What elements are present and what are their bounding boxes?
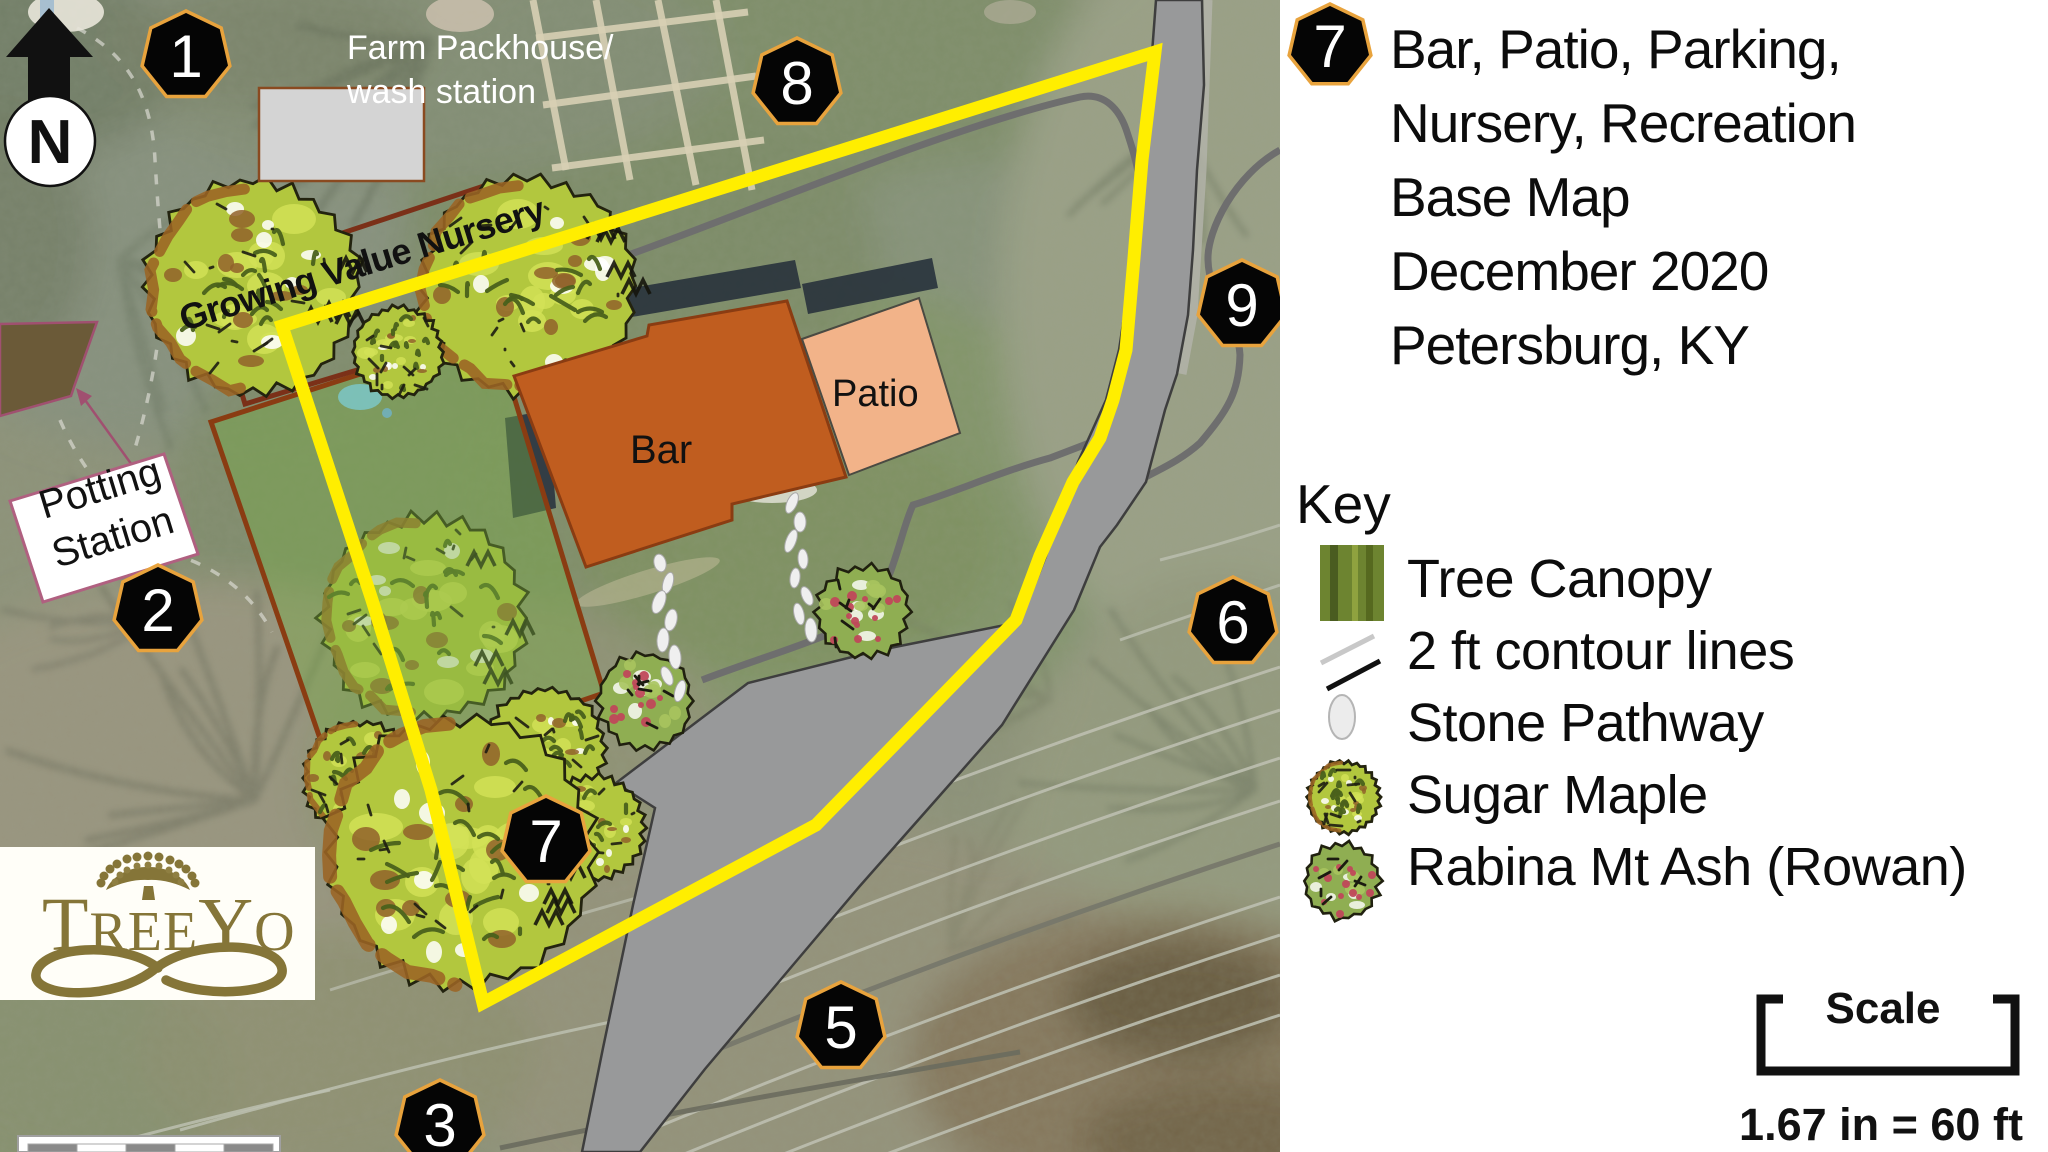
svg-text:Scale: Scale <box>1826 984 1941 1033</box>
svg-text:Farm Packhouse/: Farm Packhouse/ <box>347 29 614 67</box>
svg-text:2 ft contour lines: 2 ft contour lines <box>1407 621 1794 681</box>
svg-text:Base Map: Base Map <box>1390 166 1630 228</box>
svg-text:Tree Canopy: Tree Canopy <box>1407 549 1712 609</box>
svg-text:Nursery, Recreation: Nursery, Recreation <box>1390 92 1856 154</box>
svg-text:Rabina Mt Ash (Rowan): Rabina Mt Ash (Rowan) <box>1407 837 1967 897</box>
svg-text:3: 3 <box>423 1092 456 1152</box>
svg-text:1.67 in = 60 ft: 1.67 in = 60 ft <box>1739 1099 2023 1150</box>
svg-text:6: 6 <box>1216 589 1249 656</box>
svg-text:7: 7 <box>529 808 562 875</box>
svg-text:Petersburg, KY: Petersburg, KY <box>1390 314 1749 376</box>
svg-text:9: 9 <box>1225 272 1258 339</box>
svg-text:December 2020: December 2020 <box>1390 240 1768 302</box>
svg-text:8: 8 <box>780 50 813 117</box>
svg-text:Bar, Patio, Parking,: Bar, Patio, Parking, <box>1390 18 1841 80</box>
svg-text:Bar: Bar <box>630 428 692 472</box>
svg-text:2: 2 <box>141 577 174 644</box>
svg-text:Stone Pathway: Stone Pathway <box>1407 693 1764 753</box>
svg-text:N: N <box>28 108 73 177</box>
svg-text:wash station: wash station <box>346 73 536 111</box>
svg-text:7: 7 <box>1313 13 1346 80</box>
svg-text:Patio: Patio <box>832 373 919 415</box>
svg-text:1: 1 <box>169 23 202 90</box>
svg-text:5: 5 <box>824 994 857 1061</box>
svg-text:Key: Key <box>1296 473 1391 535</box>
svg-text:Sugar Maple: Sugar Maple <box>1407 765 1708 825</box>
